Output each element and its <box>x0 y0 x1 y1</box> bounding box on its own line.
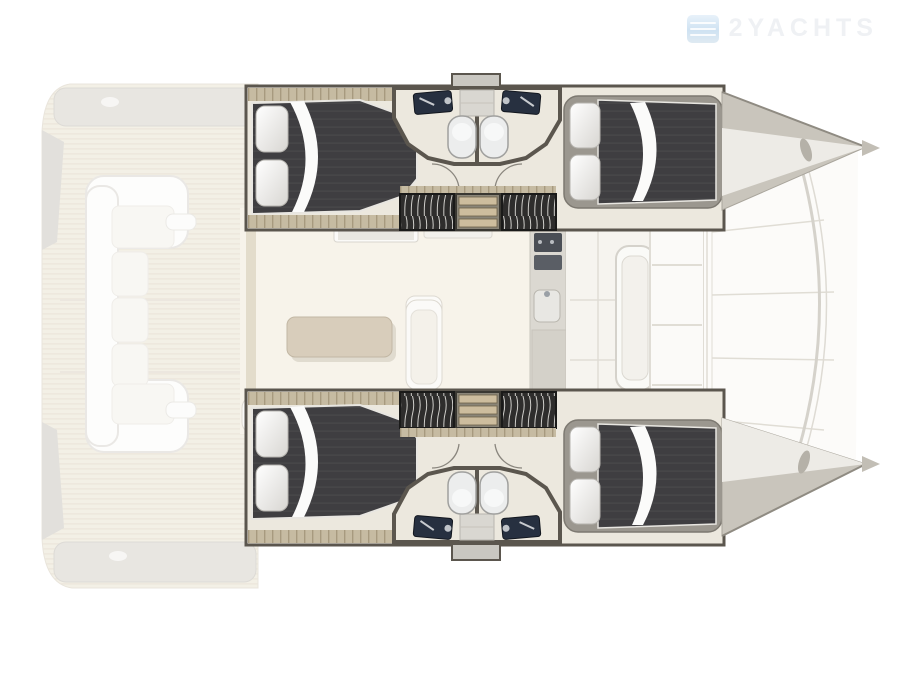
toilet <box>480 116 508 158</box>
watermark: 2YACHTS <box>687 14 878 43</box>
sliding-door-sill <box>246 230 256 406</box>
stair-step <box>459 417 497 425</box>
companionway-port <box>400 186 556 230</box>
louvered-hatch <box>502 194 556 230</box>
stair-step <box>459 197 497 205</box>
pillow <box>570 103 600 148</box>
cabin-wood-floor <box>248 215 420 228</box>
stair-step <box>459 219 497 227</box>
floor-plan-drawing <box>0 0 900 675</box>
louvered-hatch <box>502 392 556 428</box>
salon-table <box>287 317 392 357</box>
aft-transom-top <box>54 88 256 126</box>
watermark-text: 2YACHTS <box>729 14 878 43</box>
sofa-cushion-right <box>411 310 437 384</box>
toilet-bowl <box>452 489 472 507</box>
settee-armrest-top <box>166 214 196 230</box>
double-bed <box>598 100 716 204</box>
cabin-wood-floor <box>248 392 420 405</box>
companionway-starboard <box>400 392 556 437</box>
bow-tip-fitting <box>862 140 880 156</box>
louvered-hatch <box>400 194 454 230</box>
cockpit-deck <box>42 84 258 588</box>
pillow <box>256 411 288 457</box>
stove-knob <box>550 240 554 244</box>
sink-right <box>501 515 541 539</box>
settee-cushion <box>112 252 148 296</box>
stair-step <box>459 395 497 403</box>
toilet-bowl <box>484 489 504 507</box>
pillow <box>256 106 288 152</box>
stair-step <box>459 406 497 414</box>
louvered-hatch <box>400 392 454 428</box>
faucet <box>544 291 550 297</box>
settee-cushion <box>112 298 148 342</box>
deck-hatch <box>452 544 500 560</box>
transom-step-hole-bottom <box>109 551 127 561</box>
wood-landing <box>400 428 556 437</box>
pillow <box>256 465 288 511</box>
yacht-floor-plan: 2YACHTS <box>0 0 900 675</box>
pillow <box>256 160 288 206</box>
toilet <box>448 472 476 514</box>
sink-left <box>413 515 453 539</box>
toilet-bowl <box>484 123 504 141</box>
forward-cabin-starboard <box>564 420 722 532</box>
aft-cabin-starboard <box>252 405 417 519</box>
forward-cabin-port <box>564 96 722 208</box>
wave-line <box>690 34 716 36</box>
toilet-bowl <box>452 123 472 141</box>
wave-line <box>690 28 716 30</box>
yacht-logo-icon <box>687 15 719 43</box>
aft-transom-bottom <box>54 542 256 582</box>
transom-step-hole-top <box>101 97 119 107</box>
sink-left <box>413 90 453 114</box>
settee-armrest-bottom <box>166 402 196 418</box>
toilet <box>448 116 476 158</box>
wave-line <box>690 22 716 24</box>
settee-cushion <box>112 344 148 386</box>
stove-knob <box>538 240 542 244</box>
stove-burner <box>534 255 562 270</box>
settee-cushion <box>112 384 174 424</box>
forward-lounge-table-top <box>622 256 648 380</box>
stair-step <box>459 208 497 216</box>
pillow <box>570 479 600 524</box>
toilet <box>480 472 508 514</box>
bow-tip-fitting <box>862 456 880 472</box>
double-bed <box>598 424 716 528</box>
pillow <box>570 155 600 200</box>
aft-cockpit-ghost <box>42 84 258 588</box>
pillow <box>570 427 600 472</box>
sink-right <box>501 90 541 114</box>
settee-cushion <box>112 206 174 248</box>
